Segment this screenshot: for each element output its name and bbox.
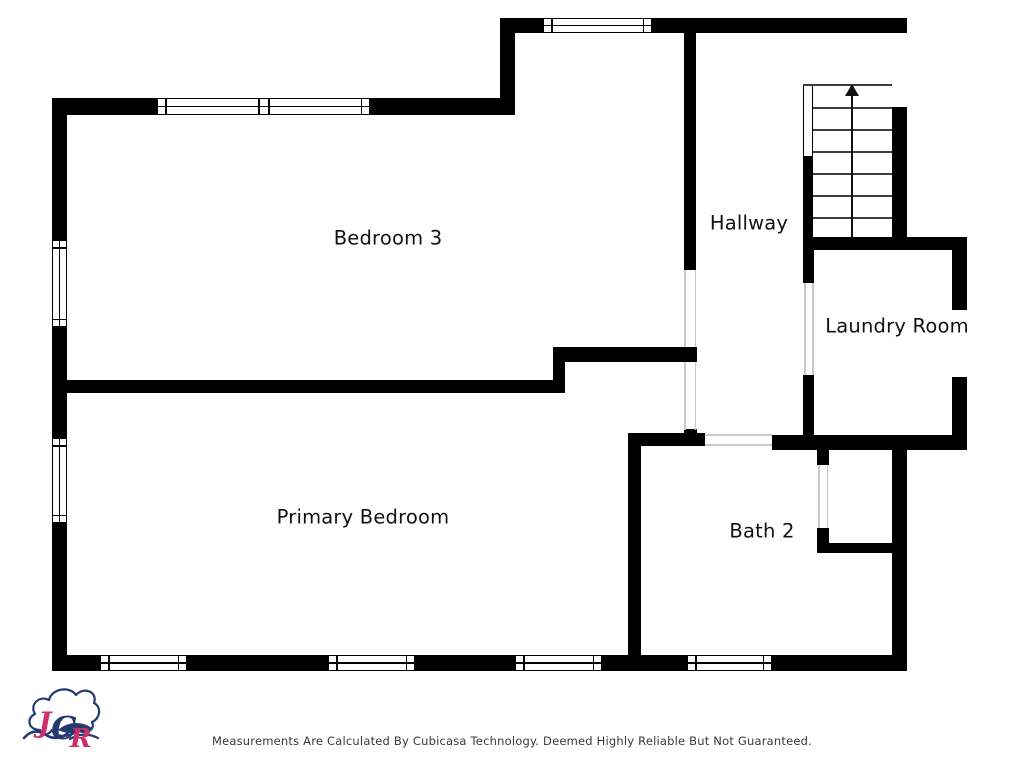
window xyxy=(52,438,67,523)
door-opening xyxy=(695,270,697,347)
wall xyxy=(803,237,967,250)
stair-tread xyxy=(813,151,892,153)
wall xyxy=(67,380,565,393)
door-opening xyxy=(705,434,772,436)
window xyxy=(100,655,187,671)
disclaimer-text: Measurements Are Calculated By Cubicasa … xyxy=(0,734,1024,748)
wall xyxy=(803,375,814,438)
window xyxy=(687,655,772,671)
room-label-bath-2: Bath 2 xyxy=(729,520,794,543)
wall xyxy=(952,237,967,310)
room-label-primary-bedroom: Primary Bedroom xyxy=(277,506,450,529)
stair-tread xyxy=(813,129,892,131)
window xyxy=(52,240,67,327)
stairs-up-arrow xyxy=(845,84,859,96)
window xyxy=(515,655,602,671)
stair-tread xyxy=(813,195,892,197)
wall xyxy=(803,250,814,283)
stair-tread xyxy=(813,107,892,109)
wall xyxy=(555,347,697,362)
wall xyxy=(892,107,907,250)
window xyxy=(157,98,370,115)
stair-tread xyxy=(813,217,892,219)
room-label-hallway: Hallway xyxy=(710,212,788,235)
window xyxy=(328,655,415,671)
wall xyxy=(684,33,696,270)
door-opening xyxy=(804,283,806,375)
door-opening xyxy=(705,444,772,446)
wall xyxy=(628,433,641,657)
wall xyxy=(817,446,829,465)
wall xyxy=(772,435,967,450)
stair-railing xyxy=(803,84,813,157)
door-opening xyxy=(827,465,829,528)
floorplan-canvas: Bedroom 3 Hallway Laundry Room Primary B… xyxy=(0,0,1024,768)
wall xyxy=(817,543,907,553)
room-label-bedroom-3: Bedroom 3 xyxy=(334,227,443,250)
wall xyxy=(892,446,907,671)
window xyxy=(543,18,652,33)
door-opening xyxy=(684,362,686,430)
door-opening xyxy=(818,465,820,528)
wall xyxy=(52,98,67,671)
wall xyxy=(684,429,697,446)
room-label-laundry-room: Laundry Room xyxy=(825,315,969,338)
door-opening xyxy=(684,270,686,347)
door-opening xyxy=(812,283,814,375)
door-opening xyxy=(695,362,697,430)
stair-tread xyxy=(813,173,892,175)
stairs-direction-line xyxy=(851,94,853,238)
